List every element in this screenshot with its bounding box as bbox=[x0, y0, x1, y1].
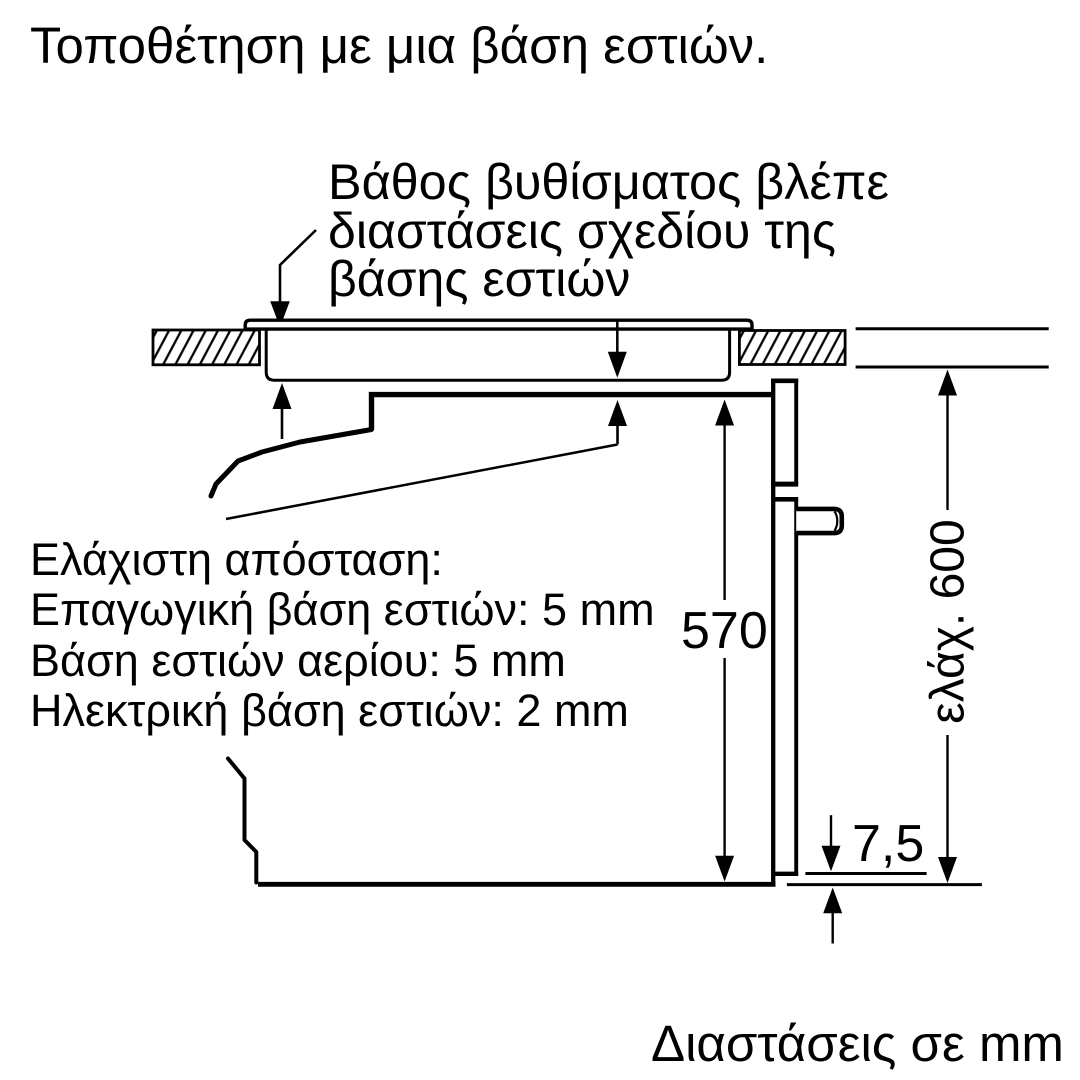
svg-text:Βάση εστιών αερίου: 5 mm: Βάση εστιών αερίου: 5 mm bbox=[30, 635, 566, 686]
svg-text:ελάχ. 600: ελάχ. 600 bbox=[922, 519, 975, 723]
svg-text:βάσης εστιών: βάσης εστιών bbox=[328, 251, 630, 307]
svg-text:570: 570 bbox=[681, 602, 768, 660]
svg-text:Ελάχιστη απόσταση:: Ελάχιστη απόσταση: bbox=[30, 534, 443, 585]
svg-text:Επαγωγική βάση εστιών: 5 mm: Επαγωγική βάση εστιών: 5 mm bbox=[30, 584, 655, 635]
svg-text:Τοποθέτηση με μια βάση εστιών.: Τοποθέτηση με μια βάση εστιών. bbox=[30, 17, 768, 74]
svg-text:Βάθος βυθίσματος βλέπε: Βάθος βυθίσματος βλέπε bbox=[328, 154, 889, 210]
svg-text:7,5: 7,5 bbox=[852, 815, 924, 873]
svg-text:Διαστάσεις σε mm: Διαστάσεις σε mm bbox=[651, 1015, 1064, 1072]
svg-text:Ηλεκτρική βάση εστιών: 2 mm: Ηλεκτρική βάση εστιών: 2 mm bbox=[30, 685, 629, 736]
